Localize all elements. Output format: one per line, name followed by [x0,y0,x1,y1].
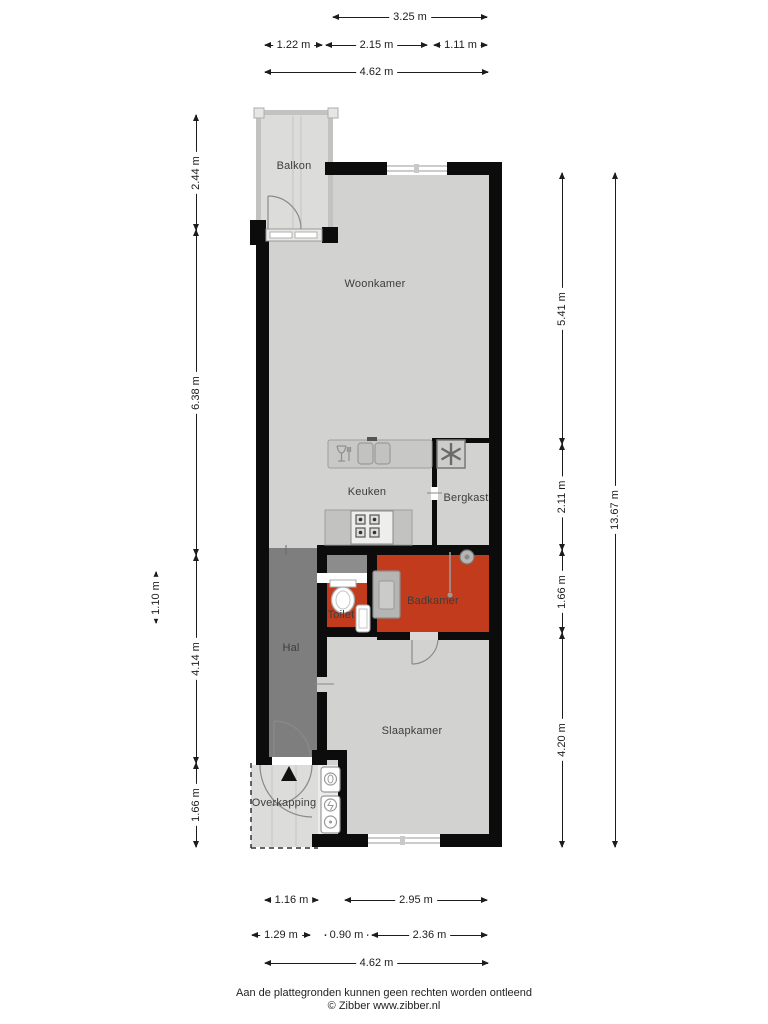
technical-closet-fixtures [321,767,340,833]
dimension-6.38-m: 6.38 m [191,230,201,555]
room-label-bergkast: Bergkast [443,492,488,504]
room-label-woonkamer: Woonkamer [345,278,406,290]
room-label-balkon: Balkon [277,160,312,172]
dimension-1.29-m: 1.29 m [252,930,310,940]
floorplan-drawing [0,0,768,1024]
dimension-5.41-m: 5.41 m [557,173,567,444]
badkamer-door-opening [410,632,438,640]
dimension-2.95-m: 2.95 m [345,895,487,905]
dimension-1.66-m: 1.66 m [191,763,201,847]
dimension-2.44-m: 2.44 m [191,115,201,230]
footer-copyright: © Zibber www.zibber.nl [0,1000,768,1013]
front-door-opening [272,757,312,765]
footer: Aan de plattegronden kunnen geen rechten… [0,987,768,1013]
room-label-toilet: Toilet [328,609,355,621]
toilet-icon [330,580,356,587]
balkon-railing [256,110,333,115]
dimension-1.66-m: 1.66 m [557,550,567,633]
room-label-slaapkamer: Slaapkamer [382,725,443,737]
dimension-3.25-m: 3.25 m [333,12,487,22]
dimension-4.20-m: 4.20 m [557,633,567,847]
dimension-4.62-m: 4.62 m [265,958,488,968]
room-label-overkapping: Overkapping [252,797,317,809]
toilet-closet-floor [327,555,367,573]
dimension-1.16-m: 1.16 m [265,895,318,905]
dimension-13.67-m: 13.67 m [610,173,620,847]
room-label-keuken: Keuken [348,486,387,498]
dimension-2.36-m: 2.36 m [372,930,487,940]
sink-icon [375,443,390,464]
faucet-icon [367,437,377,441]
floorplan-page: BalkonWoonkamerKeukenBergkastToiletBadka… [0,0,768,1024]
dimension-1.10-m: 1.10 m [151,572,161,623]
dimension-0.90-m: 0.90 m [325,930,368,940]
footer-disclaimer: Aan de plattegronden kunnen geen rechten… [0,987,768,1000]
dimension-1.22-m: 1.22 m [265,40,322,50]
room-label-badkamer: Badkamer [407,595,459,607]
room-label-hal: Hal [282,642,299,654]
dimension-4.62-m: 4.62 m [265,67,488,77]
dimension-2.11-m: 2.11 m [557,444,567,550]
dimension-2.15-m: 2.15 m [326,40,427,50]
dimension-4.14-m: 4.14 m [191,555,201,763]
dimension-1.11-m: 1.11 m [434,40,487,50]
sink-icon [358,443,373,464]
